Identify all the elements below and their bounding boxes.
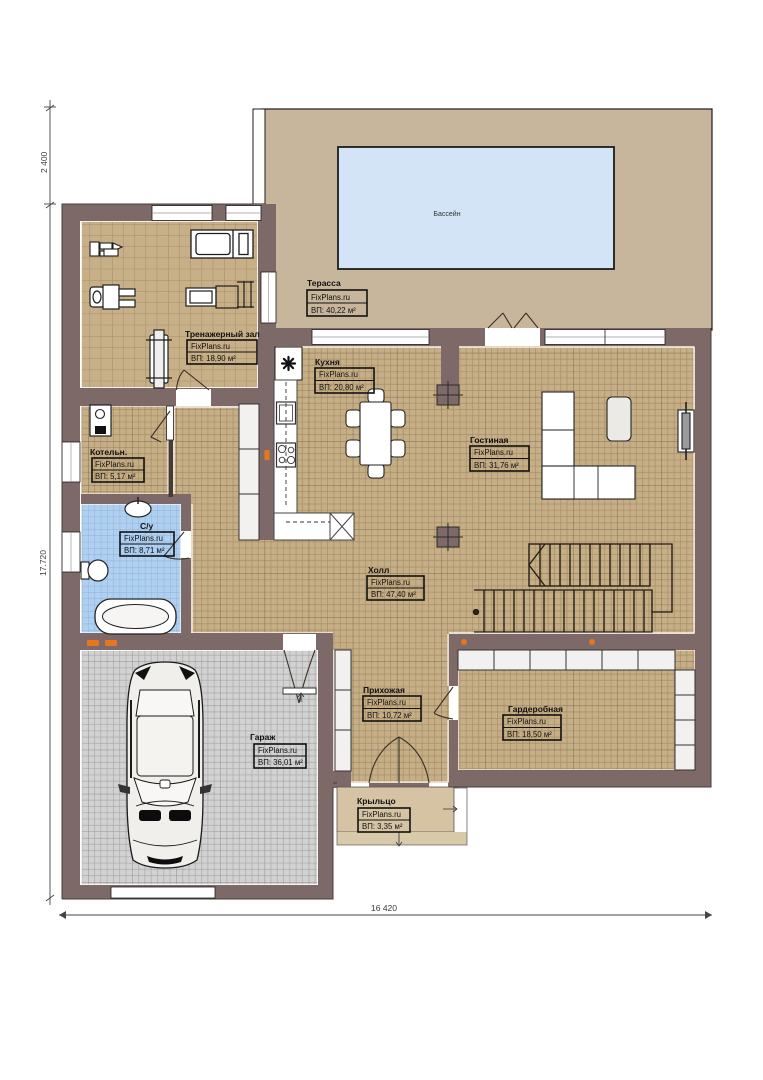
svg-text:ВП: 40,22 м²: ВП: 40,22 м² [311,306,356,315]
svg-text:ВП: 3,35 м²: ВП: 3,35 м² [362,822,403,831]
svg-text:16 420: 16 420 [371,903,397,913]
svg-text:FixPlans.ru: FixPlans.ru [319,370,358,379]
svg-text:ВП: 10,72 м²: ВП: 10,72 м² [367,711,412,720]
svg-text:Прихожая: Прихожая [363,685,405,695]
svg-text:Крыльцо: Крыльцо [357,796,396,806]
svg-text:С/у: С/у [140,521,154,531]
svg-text:ВП: 5,17 м²: ВП: 5,17 м² [95,472,136,481]
svg-text:Котельн.: Котельн. [90,447,127,457]
svg-text:FixPlans.ru: FixPlans.ru [191,342,230,351]
svg-text:ВП: 36,01 м²: ВП: 36,01 м² [258,758,303,767]
svg-text:FixPlans.ru: FixPlans.ru [474,448,513,457]
svg-text:ВП: 18,50 м²: ВП: 18,50 м² [507,730,552,739]
svg-text:Кухня: Кухня [315,357,340,367]
svg-text:Бассейн: Бассейн [433,210,460,218]
svg-text:Тренажерный зал: Тренажерный зал [185,329,260,339]
svg-text:Терасса: Терасса [307,278,341,288]
svg-text:ВП: 18,90 м²: ВП: 18,90 м² [191,354,236,363]
svg-text:17.720: 17.720 [38,550,48,576]
svg-text:FixPlans.ru: FixPlans.ru [507,717,546,726]
svg-text:FixPlans.ru: FixPlans.ru [371,578,410,587]
svg-text:FixPlans.ru: FixPlans.ru [258,746,297,755]
svg-text:FixPlans.ru: FixPlans.ru [311,293,350,302]
svg-text:ВП: 47,40 м²: ВП: 47,40 м² [371,590,416,599]
svg-text:FixPlans.ru: FixPlans.ru [362,810,401,819]
svg-text:Гостиная: Гостиная [470,435,508,445]
svg-text:ВП: 31,76 м²: ВП: 31,76 м² [474,461,519,470]
svg-text:FixPlans.ru: FixPlans.ru [367,698,406,707]
svg-text:2 400: 2 400 [39,151,49,173]
svg-text:ВП: 8,71 м²: ВП: 8,71 м² [124,546,165,555]
svg-text:Холл: Холл [368,565,389,575]
svg-text:ВП: 20,80 м²: ВП: 20,80 м² [319,383,364,392]
svg-text:Гараж: Гараж [250,732,276,742]
svg-text:FixPlans.ru: FixPlans.ru [95,460,134,469]
svg-text:Гардеробная: Гардеробная [508,704,563,714]
svg-text:FixPlans.ru: FixPlans.ru [124,534,163,543]
